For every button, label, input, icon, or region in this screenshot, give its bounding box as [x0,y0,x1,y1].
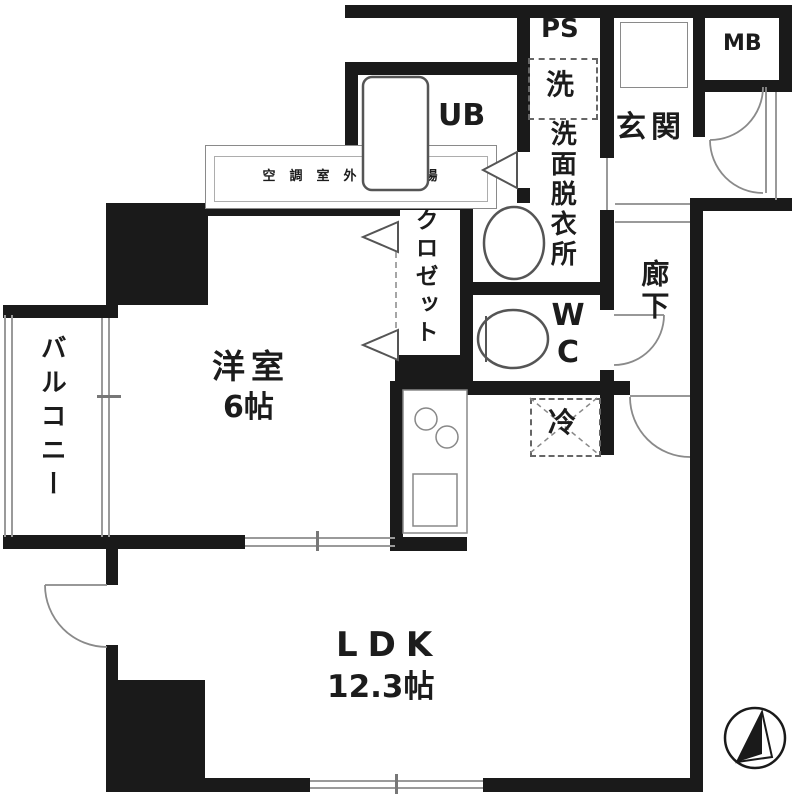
room-label-balcony: バルコニー [37,334,64,504]
room-label-closet: クロゼット [412,208,436,348]
room-label-pipe-space: PS [541,16,579,43]
room-label-entrance: 玄関 [616,112,686,144]
entrance-door-arc [710,140,763,193]
room-label-hallway: 廊下 [639,259,668,323]
north-arrow-icon [725,708,785,768]
room-label-western-room-size: 6帖 [223,392,274,424]
room-label-refrigerator: 冷 [548,408,576,437]
room-label-unit-bath: UB [438,100,485,132]
ldk-west-door-arc [45,585,107,647]
stove-burner [436,426,458,448]
closet-door-mark [363,222,398,252]
room-label-meter-box: MB [723,32,762,55]
room-label-ldk-size: 12.3帖 [327,671,435,704]
entrance-door-arc [710,87,763,140]
closet-door-mark [363,330,398,360]
bathtub [363,77,428,190]
toilet [478,310,548,368]
floor-plan: 空調室外機置場 [0,0,796,800]
room-label-ldk: LDK [336,628,442,664]
stove-burner [415,408,437,430]
room-label-washroom: 洗面脱衣所 [547,120,574,270]
hallway-door-arc [630,397,690,457]
room-label-wc: WC [552,298,584,372]
kitchen-sink [413,474,457,526]
room-label-washer: 洗 [546,70,574,99]
room-label-western-room: 洋室 [212,350,290,385]
washbasin [484,207,544,279]
unit-bath-door-mark [483,152,517,188]
